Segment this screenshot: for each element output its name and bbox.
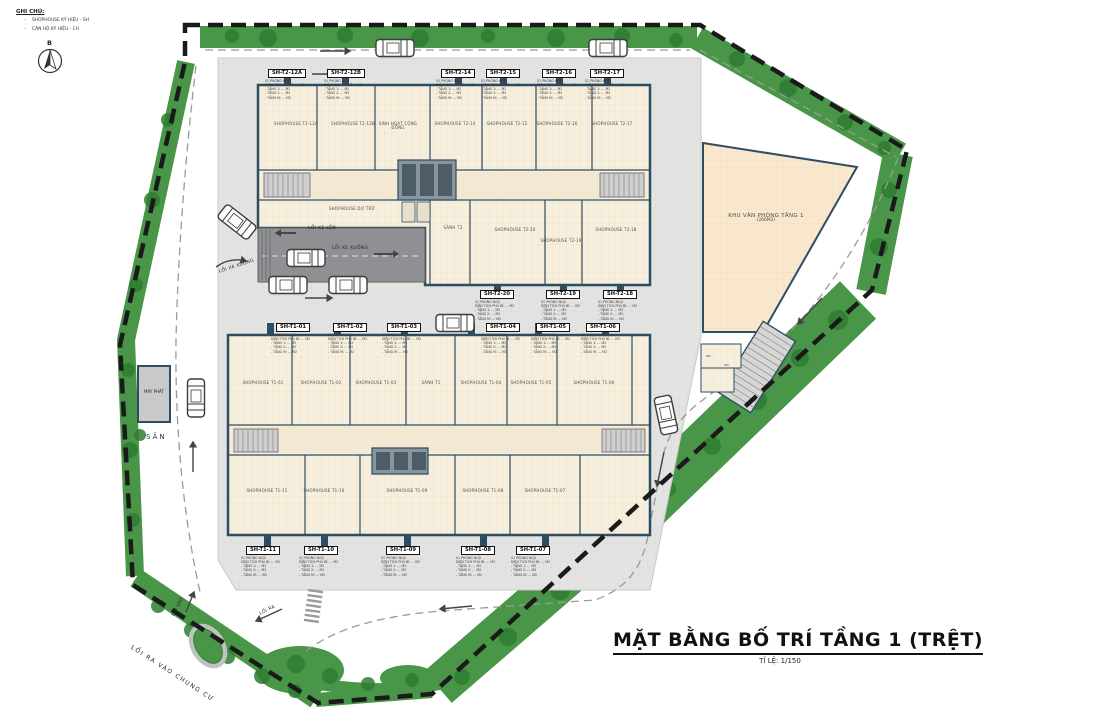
legend-bullet: - xyxy=(24,28,32,33)
unit-label-t1-02: SHOPHOUSE T1-02 xyxy=(293,381,349,385)
callout-sh-t1-11: SH-T1-1101 PHÒNG NGỦ DIỆN TÍCH PHỦ BÌ: …… xyxy=(235,536,291,577)
callout-sh-t1-02: SH-T1-0201 PHÒNG NGỦ DIỆN TÍCH PHỦ BÌ: …… xyxy=(322,313,378,354)
unit-label-t2-19: SHOPHOUSE T2-19 xyxy=(533,239,589,243)
unit-label-t2-15: SHOPHOUSE T2-15 xyxy=(479,122,535,126)
callout-sh-t1-06: SH-T1-0601 PHÒNG NGỦ DIỆN TÍCH PHỦ BÌ: …… xyxy=(575,313,631,354)
callout-sh-t2-15: SH-T2-1501 PHÒNG NGỦ DIỆN TÍCH PHỦ BÌ: …… xyxy=(475,59,531,100)
unit-label-t2-20: SHOPHOUSE T2-20 xyxy=(487,228,543,232)
callout-sh-t2-17: SH-T2-1701 PHÒNG NGỦ DIỆN TÍCH PHỦ BÌ: …… xyxy=(579,59,635,100)
unit-label-t1-03: SHOPHOUSE T1-03 xyxy=(348,381,404,385)
yard-label: SÂN xyxy=(146,434,167,442)
callout-sh-t1-09: SH-T1-0901 PHÒNG NGỦ DIỆN TÍCH PHỦ BÌ: …… xyxy=(375,536,431,577)
unit-label-t1-07: SHOPHOUSE T1-07 xyxy=(517,489,573,493)
unit-label-t2-16: SHOPHOUSE T2-16 xyxy=(529,122,585,126)
callout-sh-t1-10: SH-T1-1001 PHÒNG NGỦ DIỆN TÍCH PHỦ BÌ: …… xyxy=(293,536,349,577)
callout-sh-t1-04: SH-T1-0401 PHÒNG NGỦ DIỆN TÍCH PHỦ BÌ: …… xyxy=(475,313,531,354)
north-arrow-icon xyxy=(39,50,62,73)
site-plan-drawing xyxy=(0,0,1100,728)
north-label: B xyxy=(47,40,52,47)
legend-title: GHI CHÚ: xyxy=(16,9,44,15)
legend-bullet: - xyxy=(24,19,32,24)
unit-label-t2-18: SHOPHOUSE T2-18 xyxy=(588,228,644,232)
callout-sh-t1-01: SH-T1-0101 PHÒNG NGỦ DIỆN TÍCH PHỦ BÌ: …… xyxy=(265,313,321,354)
drawing-scale: TỈ LỆ: 1/150 xyxy=(759,658,801,666)
unit-label-t1-06: SHOPHOUSE T1-06 xyxy=(566,381,622,385)
parking-ramp xyxy=(258,228,425,282)
unit-label-t1-08: SHOPHOUSE T1-08 xyxy=(455,489,511,493)
unit-label-t1-01: SHOPHOUSE T1-01 xyxy=(235,381,291,385)
wc-label-2: WC xyxy=(724,364,729,367)
callout-sh-t1-05: SH-T1-0501 PHÒNG NGỦ DIỆN TÍCH PHỦ BÌ: …… xyxy=(525,313,581,354)
wc-label-1: WC xyxy=(706,355,711,358)
unit-label-sanh-t2: SẢNH T2 xyxy=(433,226,473,230)
callout-sh-t1-03: SH-T1-0301 PHÒNG NGỦ DIỆN TÍCH PHỦ BÌ: …… xyxy=(376,313,432,354)
unit-label-t2-14: SHOPHOUSE T2-14 xyxy=(427,122,483,126)
unit-label-t1-05: SHOPHOUSE T1-05 xyxy=(503,381,559,385)
building-t1 xyxy=(228,335,650,535)
unit-label-t2-17: SHOPHOUSE T2-17 xyxy=(584,122,640,126)
callout-sh-t2-12b: SH-T2-12B01 PHÒNG NGỦ DIỆN TÍCH PHỦ BÌ: … xyxy=(318,59,374,100)
floor-plan-canvas: GHI CHÚ: -SHOPHOUSE KÝ HIỆU - SH -CĂN HỘ… xyxy=(0,0,1100,728)
unit-label-t2-12a: SHOPHOUSE T2-12A xyxy=(268,122,324,126)
legend-item-shophouse: -SHOPHOUSE KÝ HIỆU - SH xyxy=(24,19,89,24)
legend-item-canho: -CĂN HỘ KÝ HIỆU - CH xyxy=(24,28,79,33)
drawing-title: MẶT BẰNG BỐ TRÍ TẦNG 1 (TRỆT) xyxy=(613,630,983,655)
unit-label-t1-09: SHOPHOUSE T1-09 xyxy=(379,489,435,493)
callout-sh-t1-07: SH-T1-0701 PHÒNG NGỦ DIỆN TÍCH PHỦ BÌ: …… xyxy=(505,536,561,577)
callout-sh-t2-12a: SH-T2-12A01 PHÒNG NGỦ DIỆN TÍCH PHỦ BÌ: … xyxy=(259,59,315,100)
ramp-down-label: LỐI XE XUỐNG xyxy=(332,247,369,252)
ramp-up-label: LỐI XE LÊN xyxy=(308,227,336,232)
unit-label-sanh-t1: SẢNH T1 xyxy=(411,381,451,385)
unit-label-shophouse-du-tru: SHOPHOUSE DỰ TRỮ xyxy=(322,207,382,211)
unit-label-community-room: SINH HOẠT CỘNG ĐỒNG xyxy=(372,122,424,131)
callout-sh-t1-08: SH-T1-0801 PHÒNG NGỦ DIỆN TÍCH PHỦ BÌ: …… xyxy=(450,536,506,577)
unit-label-t1-10: SHOPHOUSE T1-10 xyxy=(296,489,352,493)
generator-label: MÁY PHÁT xyxy=(139,390,169,394)
office-area-label: KHU VĂN PHÒNG TẦNG 1 (266M2) xyxy=(728,213,804,224)
unit-label-t1-11: SHOPHOUSE T1-11 xyxy=(239,489,295,493)
unit-label-t1-04: SHOPHOUSE T1-04 xyxy=(453,381,509,385)
